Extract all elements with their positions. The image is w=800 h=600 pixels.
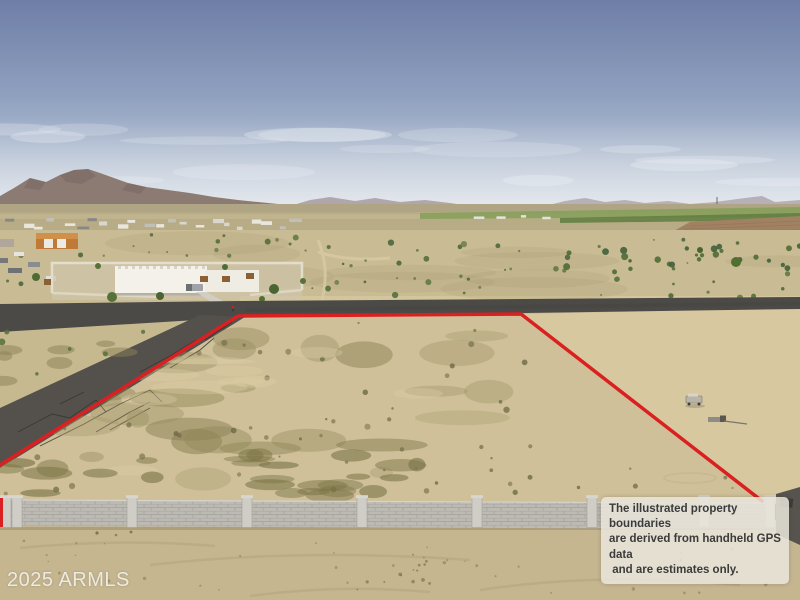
bush [150, 233, 153, 236]
bush [713, 251, 719, 257]
scrub-patch [346, 474, 370, 480]
person-on-road [232, 309, 235, 312]
bush [509, 268, 512, 271]
bush [416, 249, 419, 252]
scrub-patch [464, 380, 513, 404]
pebble [464, 561, 465, 562]
scrub-patch [419, 340, 494, 366]
distant-building [145, 224, 156, 227]
bush [781, 287, 785, 291]
scrub-tuft [577, 486, 580, 489]
aerial-photo: 2025 ARMLS The illustrated property boun… [0, 0, 800, 600]
bush [681, 238, 685, 242]
distant-building [542, 217, 550, 220]
pebble [475, 564, 478, 567]
scrub-tuft [243, 343, 246, 346]
disclaimer-line: and are estimates only. [609, 563, 781, 578]
scrub-patch [380, 474, 409, 481]
pebble [428, 582, 431, 585]
parapet-block [174, 266, 177, 269]
pebble [425, 560, 428, 563]
pebble [335, 566, 338, 569]
distant-building [196, 225, 205, 228]
bush [4, 330, 9, 335]
scrub-patch [96, 341, 115, 347]
scrub-tuft [435, 481, 438, 484]
pillar-cap [241, 495, 253, 498]
scrub-tuft [237, 472, 241, 476]
pebble [418, 564, 421, 567]
parapet-block [132, 266, 135, 269]
bush [711, 245, 718, 252]
disclaimer-line: The illustrated property boundaries [609, 502, 781, 532]
scrub-tuft [479, 445, 483, 449]
bush [133, 245, 135, 247]
bush [628, 259, 631, 262]
bush [396, 277, 398, 279]
scrub-tuft [221, 340, 227, 346]
parapet-block [195, 266, 198, 269]
desert-wash [105, 231, 289, 255]
parapet-block [153, 266, 156, 269]
pillar-cap [356, 495, 368, 498]
bush [227, 254, 231, 258]
distant-building [474, 216, 485, 219]
bush [620, 247, 627, 254]
sand-streak [121, 393, 177, 405]
bush [349, 264, 352, 267]
scrub-tuft [633, 484, 638, 489]
bush [518, 250, 520, 252]
cart-canopy [688, 394, 698, 397]
bush [668, 293, 673, 298]
bush [767, 259, 771, 263]
pebble [416, 570, 418, 572]
scrub-tuft [285, 349, 291, 355]
distant-building [127, 220, 135, 223]
scrub-tuft [357, 322, 359, 324]
pillar-cap [11, 495, 23, 498]
bush [216, 239, 221, 244]
scrub-tuft [508, 482, 513, 487]
parapet-block [146, 266, 149, 269]
bush [687, 262, 689, 264]
scrub-tuft [258, 350, 263, 355]
scrub-tuft [723, 476, 727, 480]
distant-building [213, 219, 224, 223]
bush [495, 243, 500, 248]
scrub-tuft [473, 329, 476, 332]
scrub-tuft [63, 427, 66, 430]
bush [563, 263, 570, 270]
pillar-cap [0, 495, 12, 498]
bush [600, 294, 602, 296]
pebble [199, 585, 201, 587]
bush [148, 251, 150, 253]
pebble [239, 555, 241, 557]
scrub-tuft [299, 437, 302, 440]
barn-roof [36, 233, 78, 239]
bush [388, 239, 394, 245]
sand-streak [393, 388, 442, 399]
scrub-tuft [264, 435, 269, 440]
pebble [550, 592, 552, 594]
vehicle [0, 258, 8, 263]
scrub-tuft [503, 407, 509, 413]
pebble [75, 542, 77, 544]
parapet-block [139, 266, 142, 269]
scrub-patch [184, 426, 252, 453]
bush [467, 278, 470, 281]
bush [669, 261, 675, 267]
sand-streak [205, 366, 263, 377]
parapet-block [160, 266, 163, 269]
scrub-patch [331, 449, 371, 461]
bush [6, 279, 9, 282]
wall-pillar [587, 497, 597, 528]
bush [166, 251, 168, 253]
person-on-road [232, 306, 235, 309]
bush [628, 267, 632, 271]
pebble [632, 587, 635, 590]
bush [602, 248, 609, 255]
distant-building [168, 219, 176, 222]
desert-wash [461, 247, 572, 258]
distant-building [24, 224, 34, 228]
scrub-tuft [278, 456, 280, 458]
wall-pillar [242, 497, 252, 528]
distant-building [156, 224, 164, 227]
sand-streak [290, 347, 342, 358]
pebble [698, 591, 701, 594]
bush [785, 271, 790, 276]
bush [342, 263, 345, 266]
scrub-tuft [319, 434, 322, 437]
scrub-tuft [391, 407, 394, 410]
pebble [346, 582, 348, 584]
bush [19, 281, 24, 286]
scrub-tuft [363, 390, 368, 395]
bush [214, 248, 218, 252]
pebble [47, 561, 49, 563]
parapet-block [125, 266, 128, 269]
pebble [411, 580, 415, 584]
bush [222, 234, 225, 237]
bush [289, 243, 292, 246]
wall-pillar [12, 497, 22, 528]
bush [672, 283, 675, 286]
scrub-tuft [364, 424, 370, 430]
scrub-patch [415, 410, 510, 425]
bush [68, 347, 72, 351]
scrub-patch [20, 489, 60, 497]
distant-building [99, 221, 107, 225]
scrub-tuft [249, 426, 253, 430]
pillar-cap [586, 495, 598, 498]
scrub-tuft [731, 487, 733, 489]
parapet-block [202, 266, 205, 269]
scrub-tuft [522, 360, 528, 366]
scrub-tuft [387, 417, 391, 421]
vehicle [8, 268, 22, 273]
parapet-block [118, 266, 121, 269]
scrub-patch [335, 341, 392, 368]
garage-gate [222, 276, 230, 282]
scrub-patch [175, 467, 231, 490]
scrub-tuft [331, 419, 335, 423]
truck-cab [186, 284, 192, 291]
scrub-tuft [231, 428, 237, 434]
scrub-patch [21, 467, 72, 480]
scrub-patch [250, 475, 294, 483]
bush [712, 280, 715, 283]
scrub-tuft [424, 488, 430, 494]
pebble [443, 561, 446, 564]
pebble [218, 589, 220, 591]
bush [719, 249, 723, 253]
bush [700, 253, 704, 257]
bush [327, 245, 331, 249]
bush [78, 252, 83, 257]
bush [655, 256, 661, 262]
bush [396, 260, 401, 265]
garage-gate [246, 273, 254, 279]
bush [459, 275, 462, 278]
bush [736, 241, 740, 245]
bush [463, 292, 466, 295]
pebble [412, 554, 414, 556]
pebble [356, 588, 358, 590]
wall-pillar [127, 497, 137, 528]
utility-cart [686, 396, 702, 403]
pebble [423, 563, 426, 566]
pebble [446, 559, 448, 561]
bush [653, 239, 655, 241]
barn-door [57, 239, 66, 248]
bush [141, 330, 145, 334]
pebble [392, 564, 395, 567]
bush [35, 372, 38, 375]
bush [697, 257, 701, 261]
distant-building [46, 218, 54, 221]
scrub-tuft [400, 447, 404, 451]
scrub-patch [246, 448, 272, 461]
scrub-tuft [450, 363, 455, 368]
scrub-patch [47, 357, 73, 369]
disclaimer-line: are derived from handheld GPS data [609, 532, 781, 562]
distant-building [118, 224, 128, 228]
scrub-patch [83, 469, 118, 478]
distant-building [280, 226, 286, 229]
scrub-tuft [489, 468, 493, 472]
bush [753, 254, 758, 259]
distant-building [180, 222, 187, 225]
bush [325, 286, 331, 292]
distant-building [224, 223, 229, 226]
bush [265, 239, 271, 245]
bush [392, 292, 398, 298]
pillar-cap [126, 495, 138, 498]
bush [461, 241, 467, 247]
distant-building [521, 215, 526, 218]
scrub-patch [259, 462, 299, 469]
bush [311, 287, 313, 289]
bush [781, 263, 785, 267]
parapet-block [167, 266, 170, 269]
distant-building [34, 227, 43, 230]
trailer [14, 252, 24, 256]
distant-building [261, 221, 272, 225]
scrub-patch [136, 457, 157, 464]
distant-building [88, 218, 97, 221]
bush [612, 269, 617, 274]
bush [304, 249, 306, 251]
scrub-patch [141, 472, 164, 484]
scrub-tuft [4, 492, 8, 496]
yard-gate [44, 279, 51, 285]
scrub-tuft [499, 400, 503, 404]
vehicle [28, 262, 40, 267]
garage-gate [200, 276, 208, 282]
scrub-patch [306, 489, 355, 503]
distant-building [289, 219, 302, 223]
bush [786, 245, 792, 251]
bush [685, 246, 689, 250]
bush [566, 250, 571, 255]
barn-door [44, 239, 53, 248]
bush [413, 277, 416, 280]
distant-building [237, 227, 243, 231]
bush [695, 253, 698, 256]
pebble [366, 580, 369, 583]
scrub-patch [408, 458, 425, 472]
bush [785, 265, 791, 271]
pillar-cap [471, 495, 483, 498]
pebble [518, 566, 520, 568]
bush [425, 279, 431, 285]
parapet-block [188, 266, 191, 269]
pebble [421, 578, 425, 582]
pebble [398, 573, 402, 577]
bush [275, 238, 279, 242]
pebble [683, 592, 686, 595]
distant-building [252, 219, 261, 223]
scrub-tuft [629, 467, 631, 469]
bush [615, 276, 620, 281]
bush [186, 254, 189, 257]
scrub-tuft [197, 350, 202, 355]
pebble [75, 554, 77, 556]
bush [293, 235, 299, 241]
shed [0, 239, 14, 247]
gps-disclaimer-box: The illustrated property boundaries are … [601, 497, 789, 584]
pebble [426, 546, 428, 548]
distant-building [496, 216, 505, 219]
pebble [46, 554, 48, 556]
scrub-patch [79, 452, 104, 462]
bush [364, 259, 367, 262]
pebble [315, 542, 317, 544]
distant-building [77, 227, 89, 230]
pebble [333, 552, 335, 554]
bush [103, 351, 108, 356]
pebble [104, 543, 106, 545]
bush [334, 280, 339, 285]
pebble [494, 575, 496, 577]
scrub-tuft [34, 454, 40, 460]
scrub-tuft [528, 475, 533, 480]
watermark: 2025 ARMLS [7, 569, 130, 592]
pebble [143, 577, 146, 580]
scrub-tuft [325, 418, 327, 420]
scrub-tuft [490, 457, 493, 460]
scrub-tuft [513, 490, 518, 495]
scrub-tuft [528, 444, 532, 448]
scrub-tuft [69, 483, 75, 489]
bush [621, 253, 628, 260]
bush [103, 255, 105, 257]
pebble [413, 569, 415, 571]
pebble [423, 557, 425, 559]
scrub-tuft [468, 341, 474, 347]
bush [598, 245, 601, 248]
wall-pillar [357, 497, 367, 528]
bush [553, 266, 559, 272]
wall-pillar [472, 497, 482, 528]
pebble [383, 581, 385, 583]
bush [423, 256, 429, 262]
bush [565, 255, 571, 261]
scrub-patch [445, 330, 508, 341]
sand-streak [232, 376, 276, 388]
bush [478, 286, 481, 289]
bush [364, 281, 367, 284]
parapet-block [181, 266, 184, 269]
distant-building [65, 223, 75, 226]
bush [504, 269, 506, 271]
scrub-tuft [126, 422, 131, 427]
pebble [23, 540, 26, 543]
scrub-tuft [445, 373, 450, 378]
scrub-tuft [174, 431, 179, 436]
bush [706, 291, 709, 294]
distant-building [5, 219, 14, 222]
